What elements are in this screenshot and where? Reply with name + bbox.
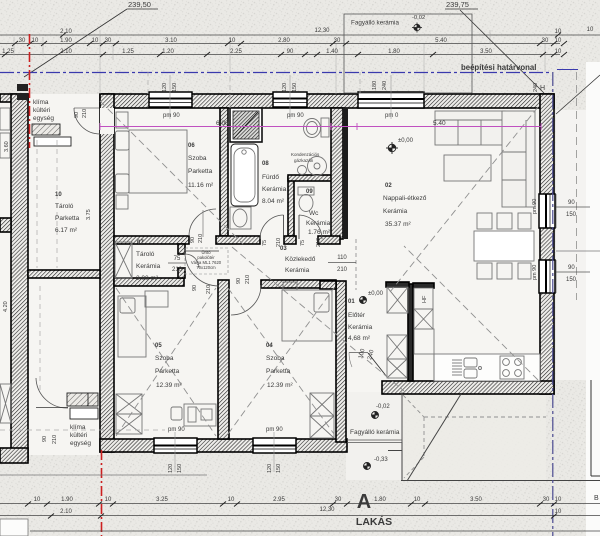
svg-text:Előtér: Előtér	[348, 312, 366, 319]
svg-text:12.39 m²: 12.39 m²	[267, 382, 293, 389]
svg-text:90: 90	[287, 49, 294, 55]
svg-text:B: B	[594, 495, 599, 502]
svg-text:10: 10	[229, 38, 236, 44]
svg-text:150: 150	[292, 83, 298, 92]
svg-text:Parketta: Parketta	[188, 168, 213, 175]
svg-text:10: 10	[32, 38, 39, 44]
svg-text:1.80: 1.80	[388, 49, 400, 55]
svg-text:1.25: 1.25	[122, 49, 134, 55]
svg-text:09: 09	[306, 189, 313, 195]
svg-text:LAKÁS: LAKÁS	[356, 515, 392, 528]
svg-text:5.40: 5.40	[433, 120, 446, 127]
svg-text:Tároló: Tároló	[136, 251, 155, 258]
svg-text:210: 210	[82, 109, 88, 118]
svg-text:Kondenzációs: Kondenzációs	[291, 152, 320, 157]
svg-text:egység: egység	[70, 440, 91, 447]
svg-text:10: 10	[55, 192, 62, 198]
svg-text:90: 90	[42, 436, 48, 442]
svg-text:4,68 m²: 4,68 m²	[348, 335, 371, 342]
svg-text:35.37 m²: 35.37 m²	[385, 221, 411, 228]
svg-text:3.50: 3.50	[470, 497, 482, 503]
svg-text:kültéri: kültéri	[33, 107, 50, 114]
svg-text:30: 30	[334, 38, 341, 44]
svg-text:11.16 m²: 11.16 m²	[188, 182, 214, 189]
svg-text:120: 120	[162, 83, 168, 92]
svg-text:2.10: 2.10	[60, 29, 72, 35]
svg-text:02: 02	[385, 183, 392, 189]
svg-text:120: 120	[168, 464, 174, 473]
svg-text:239,50: 239,50	[128, 0, 151, 9]
svg-text:-0,02: -0,02	[412, 15, 425, 21]
svg-text:1.80: 1.80	[374, 497, 386, 503]
svg-text:1.20: 1.20	[162, 49, 174, 55]
svg-text:210: 210	[206, 285, 212, 294]
svg-text:30: 30	[543, 497, 550, 503]
svg-text:12,30: 12,30	[314, 28, 330, 34]
svg-text:10: 10	[34, 497, 41, 503]
svg-text:150: 150	[177, 464, 183, 473]
svg-text:Parketta: Parketta	[55, 215, 80, 222]
svg-text:12.39 m²: 12.39 m²	[156, 382, 182, 389]
svg-text:210: 210	[276, 238, 282, 247]
svg-text:6.17 m²: 6.17 m²	[55, 227, 78, 234]
svg-text:Parketta: Parketta	[155, 368, 180, 375]
svg-text:Szoba: Szoba	[188, 155, 207, 162]
svg-text:210: 210	[337, 267, 348, 273]
svg-text:Fagyálló kerámia: Fagyálló kerámia	[351, 20, 399, 27]
svg-text:-0,33: -0,33	[374, 457, 388, 463]
svg-text:Szoba: Szoba	[155, 355, 174, 362]
svg-text:Tároló: Tároló	[55, 203, 74, 210]
svg-text:75: 75	[262, 240, 268, 246]
svg-text:Szoba: Szoba	[266, 355, 285, 362]
svg-text:150: 150	[566, 212, 577, 218]
svg-text:05: 05	[155, 343, 162, 349]
svg-text:Közlekedő: Közlekedő	[285, 256, 316, 263]
svg-text:Parketta: Parketta	[266, 368, 291, 375]
svg-text:180: 180	[372, 81, 378, 90]
svg-text:4.20: 4.20	[3, 301, 9, 312]
svg-text:Fagyálló kerámia: Fagyálló kerámia	[350, 429, 400, 436]
svg-text:beépítési határvonal: beépítési határvonal	[461, 63, 536, 72]
svg-text:2.10: 2.10	[60, 49, 72, 55]
svg-text:210: 210	[245, 275, 251, 284]
svg-text:10: 10	[414, 497, 421, 503]
svg-text:10: 10	[555, 29, 562, 35]
svg-text:2.95: 2.95	[273, 497, 285, 503]
svg-text:239,75: 239,75	[446, 0, 469, 9]
svg-text:90: 90	[568, 265, 575, 271]
svg-text:3.60: 3.60	[4, 141, 10, 152]
svg-text:6.00: 6.00	[216, 120, 229, 127]
svg-text:klíma: klíma	[33, 99, 49, 106]
svg-text:10: 10	[555, 497, 562, 503]
svg-text:30: 30	[335, 497, 342, 503]
svg-text:5.40: 5.40	[435, 38, 447, 44]
svg-text:8.04 m²: 8.04 m²	[262, 198, 285, 205]
svg-text:10: 10	[555, 509, 562, 515]
svg-text:Kerámia: Kerámia	[262, 186, 287, 193]
svg-text:Nappali-étkező: Nappali-étkező	[383, 195, 427, 202]
svg-text:110: 110	[337, 255, 347, 261]
svg-text:±0,00: ±0,00	[398, 138, 414, 144]
svg-text:70x120cm: 70x120cm	[196, 265, 216, 270]
svg-text:90: 90	[190, 237, 196, 243]
svg-text:pm 90: pm 90	[532, 199, 538, 214]
svg-text:Wc: Wc	[309, 210, 319, 217]
svg-text:210: 210	[198, 234, 204, 243]
svg-text:10: 10	[555, 49, 562, 55]
svg-text:3.75: 3.75	[86, 209, 92, 220]
svg-text:30: 30	[105, 38, 112, 44]
svg-text:10: 10	[228, 497, 235, 503]
svg-text:1.40: 1.40	[326, 49, 338, 55]
svg-text:10: 10	[105, 497, 112, 503]
svg-text:10: 10	[92, 38, 99, 44]
svg-text:90: 90	[236, 278, 242, 284]
svg-text:90: 90	[192, 285, 198, 291]
svg-text:210: 210	[172, 267, 183, 273]
svg-text:pm 90: pm 90	[287, 113, 304, 119]
svg-text:75: 75	[300, 240, 306, 246]
svg-text:-0,02: -0,02	[376, 404, 390, 410]
svg-text:01: 01	[348, 299, 355, 305]
svg-text:pm 90: pm 90	[168, 427, 185, 433]
svg-text:150: 150	[276, 464, 282, 473]
svg-text:Kerámia: Kerámia	[383, 208, 408, 215]
svg-text:1.25: 1.25	[2, 49, 14, 55]
svg-text:90: 90	[568, 200, 575, 206]
svg-text:240: 240	[382, 81, 388, 90]
svg-text:Kerámia: Kerámia	[348, 324, 373, 331]
svg-text:pm 0: pm 0	[385, 113, 399, 119]
svg-text:150: 150	[172, 83, 178, 92]
svg-text:pm 90: pm 90	[163, 113, 180, 119]
svg-text:75: 75	[174, 256, 181, 262]
svg-text:3.25: 3.25	[156, 497, 168, 503]
svg-text:2.80: 2.80	[278, 38, 290, 44]
svg-text:30: 30	[542, 38, 549, 44]
svg-text:240: 240	[533, 83, 539, 92]
svg-text:Kerámia: Kerámia	[285, 267, 310, 274]
svg-text:150: 150	[566, 277, 577, 283]
svg-text:04: 04	[266, 343, 273, 349]
svg-text:1.90: 1.90	[61, 497, 73, 503]
svg-text:3.10: 3.10	[165, 38, 177, 44]
svg-text:12,30: 12,30	[319, 507, 335, 513]
svg-text:pm 90: pm 90	[266, 427, 283, 433]
svg-text:120: 120	[282, 83, 288, 92]
svg-text:2.25: 2.25	[230, 49, 242, 55]
svg-text:2.10: 2.10	[60, 509, 72, 515]
svg-text:A: A	[357, 491, 371, 513]
svg-text:06: 06	[188, 143, 195, 149]
svg-text:10: 10	[555, 38, 562, 44]
svg-text:08: 08	[262, 161, 269, 167]
svg-text:210: 210	[316, 238, 322, 247]
svg-text:klíma: klíma	[70, 424, 86, 431]
svg-text:1.90: 1.90	[60, 38, 72, 44]
svg-text:1.76 m²: 1.76 m²	[308, 229, 331, 236]
svg-text:210: 210	[52, 435, 58, 444]
svg-text:10: 10	[587, 27, 594, 33]
svg-text:kültéri: kültéri	[70, 432, 87, 439]
svg-text:2.00 m²: 2.00 m²	[136, 275, 159, 282]
svg-text:3.50: 3.50	[480, 49, 492, 55]
svg-text:120: 120	[267, 464, 273, 473]
svg-text:07: 07	[137, 240, 144, 246]
svg-text:Kerámia: Kerámia	[306, 220, 331, 227]
svg-text:gázkazán: gázkazán	[294, 158, 314, 163]
svg-text:30: 30	[19, 38, 26, 44]
svg-text:pm 90: pm 90	[532, 265, 538, 280]
svg-text:H: H	[540, 85, 545, 92]
svg-text:Kerámia: Kerámia	[136, 263, 161, 270]
svg-text:HF: HF	[422, 295, 428, 303]
svg-text:±0,00: ±0,00	[368, 291, 384, 297]
svg-text:90: 90	[74, 112, 80, 118]
svg-text:Fürdő: Fürdő	[262, 174, 279, 181]
svg-text:egység: egység	[33, 115, 54, 122]
